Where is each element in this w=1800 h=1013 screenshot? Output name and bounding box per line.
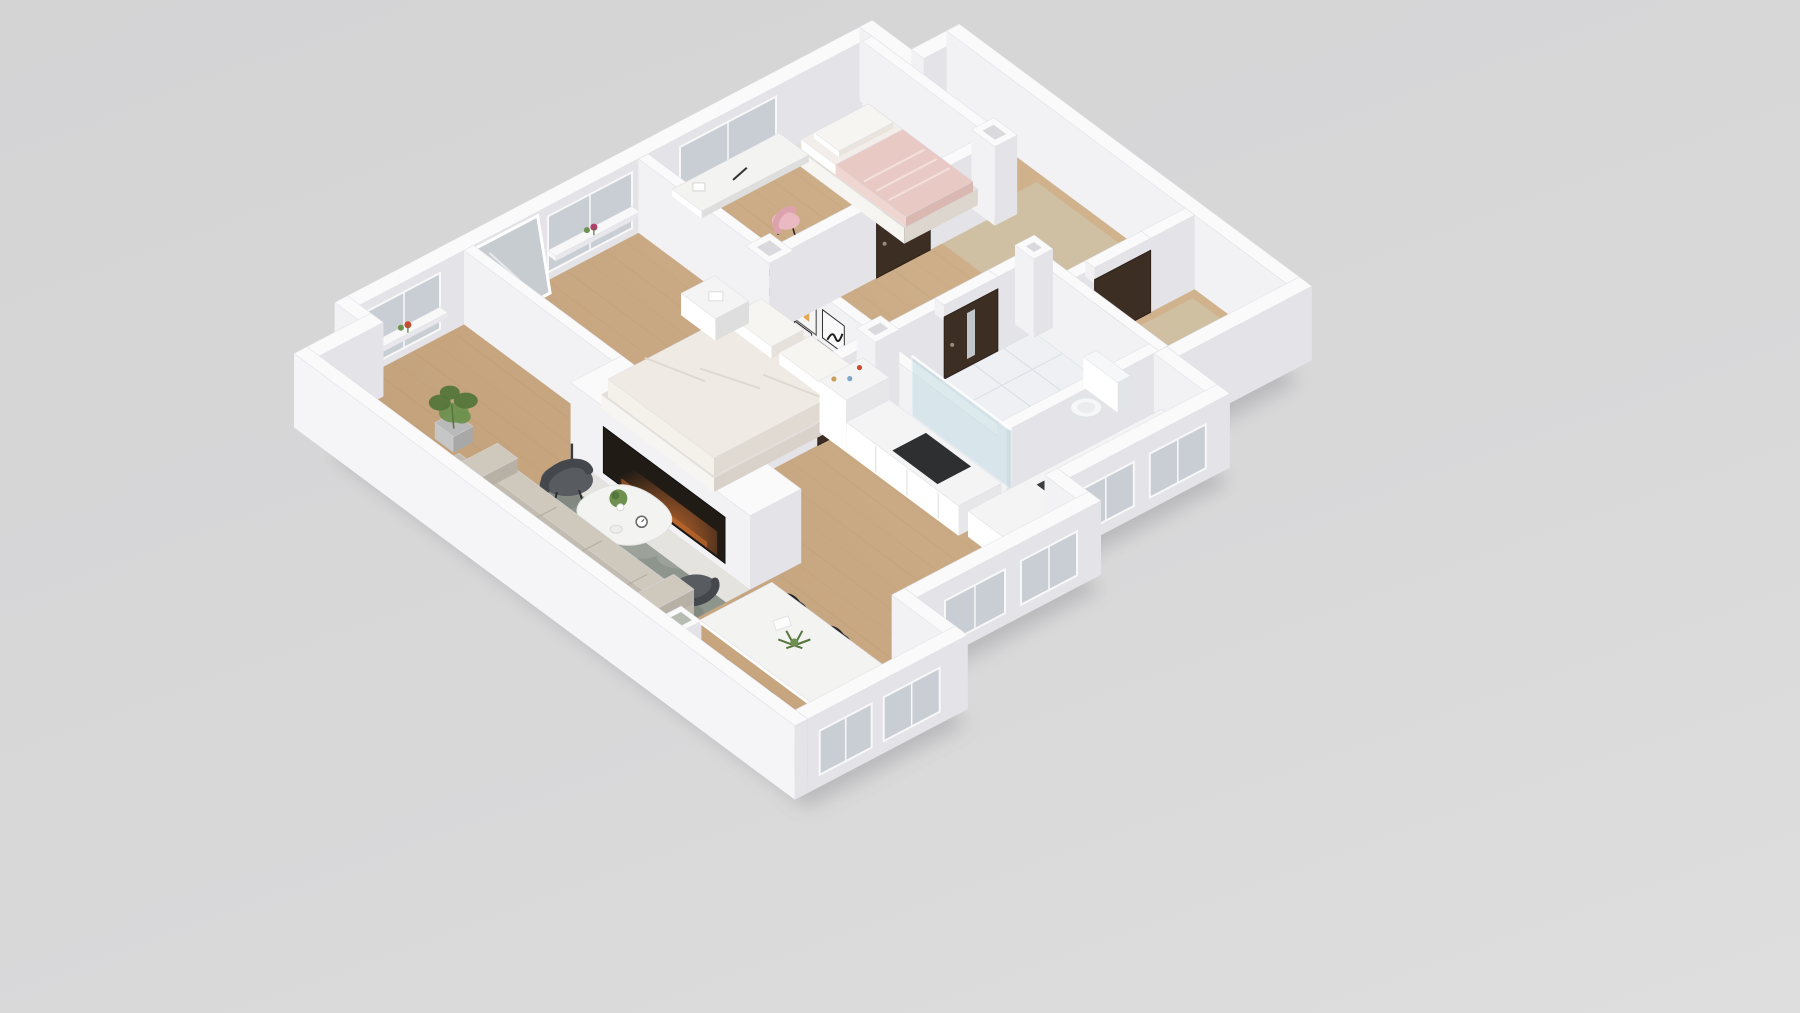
wall-junction-cap — [971, 118, 1017, 226]
floor-plan-3d-render — [0, 0, 1800, 1013]
apartment-render-canvas — [0, 0, 1800, 1013]
wall-junction-cap — [1015, 235, 1053, 338]
